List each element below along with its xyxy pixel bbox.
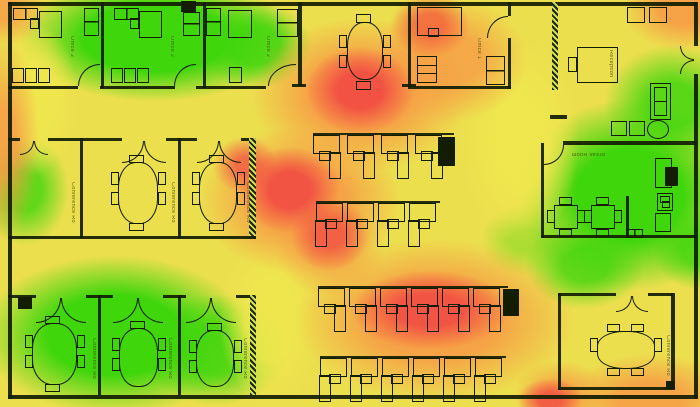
- chair: [383, 35, 391, 48]
- chair: [192, 172, 200, 185]
- wall: [508, 38, 511, 89]
- chair: [45, 316, 60, 324]
- workstation: [444, 358, 471, 377]
- shelf: [277, 9, 298, 37]
- chair: [590, 338, 598, 352]
- chair: [547, 210, 555, 223]
- wall: [648, 293, 673, 296]
- chair: [111, 172, 119, 185]
- chair: [596, 229, 609, 237]
- chair: [129, 155, 144, 163]
- chair: [111, 192, 119, 205]
- workstation: [378, 203, 405, 222]
- workstation: [347, 135, 374, 154]
- chair: [25, 68, 37, 83]
- workstation: [413, 358, 440, 377]
- printer: [503, 289, 519, 316]
- room-label-office: Office 2: [258, 36, 270, 68]
- room-label-break-room: Break Room: [567, 146, 605, 156]
- chair: [649, 7, 667, 23]
- wall: [408, 2, 411, 86]
- refrigerator: [665, 167, 678, 186]
- chair: [112, 338, 120, 351]
- wall: [508, 2, 511, 16]
- workstation: [382, 358, 409, 377]
- workstation: [313, 135, 340, 154]
- wall: [8, 236, 256, 239]
- conference-table: [196, 330, 234, 387]
- printer: [438, 137, 455, 166]
- table: [554, 205, 578, 229]
- chair: [45, 384, 60, 392]
- conference-table: [32, 323, 77, 385]
- chair: [137, 68, 149, 83]
- cabinet: [183, 12, 200, 36]
- room-label-conference: Conference Ro: [160, 338, 172, 382]
- wall: [563, 141, 697, 145]
- workstation: [475, 358, 502, 377]
- wall: [671, 293, 675, 389]
- chair: [189, 360, 197, 373]
- wall: [8, 86, 78, 89]
- chair: [229, 67, 242, 83]
- workstation: [381, 135, 408, 154]
- chair: [631, 324, 644, 332]
- access-point-marker: [181, 1, 196, 12]
- room-label-reception: Reception: [601, 50, 613, 86]
- wall: [48, 138, 122, 141]
- chair: [112, 358, 120, 371]
- workstation: [316, 203, 343, 222]
- chair: [607, 368, 620, 376]
- chair: [631, 368, 644, 376]
- room-label-office: Office 2: [162, 36, 174, 68]
- conference-table: [199, 162, 237, 224]
- room-label-conference: Conference Ro: [238, 182, 250, 224]
- chair: [559, 197, 572, 205]
- desk: [39, 11, 62, 38]
- access-point-marker: [666, 381, 675, 389]
- cabinet: [655, 213, 671, 232]
- chair: [38, 68, 50, 83]
- wall: [8, 2, 697, 6]
- chair: [629, 121, 645, 136]
- chair: [124, 68, 136, 83]
- wall: [250, 295, 256, 395]
- chair: [584, 210, 592, 223]
- room-label-office1: Office 1: [469, 38, 481, 70]
- wall: [178, 138, 181, 238]
- chair: [611, 121, 627, 136]
- wall-stub: [550, 115, 567, 119]
- room-label-conference: Conference Ro: [658, 335, 670, 379]
- cabinet: [206, 8, 221, 36]
- chair: [130, 321, 145, 329]
- wall: [163, 295, 186, 298]
- chair: [209, 155, 224, 163]
- desk: [417, 7, 462, 36]
- wall: [178, 295, 181, 395]
- wall: [80, 138, 83, 238]
- chair: [30, 18, 39, 29]
- wall: [408, 86, 511, 89]
- chair: [130, 18, 139, 29]
- conference-table: [119, 328, 158, 387]
- wall: [298, 2, 302, 86]
- wall: [249, 138, 256, 239]
- chair: [25, 335, 33, 348]
- workstation: [320, 358, 347, 377]
- desk: [228, 10, 252, 38]
- room-label-conference: Conference Ro: [84, 338, 96, 382]
- floor-box: [627, 229, 643, 238]
- chair: [111, 68, 123, 83]
- conference-table: [347, 22, 383, 80]
- wall: [558, 387, 675, 390]
- chair: [559, 229, 572, 237]
- wall: [8, 2, 12, 399]
- chair: [596, 197, 609, 205]
- chair: [25, 355, 33, 368]
- chair: [129, 223, 144, 231]
- chair: [189, 340, 197, 353]
- wall: [558, 293, 561, 390]
- round-table: [647, 120, 669, 139]
- room-label-conference: Conference Ro: [163, 182, 175, 224]
- chair: [339, 55, 347, 68]
- wall: [8, 138, 20, 141]
- chair: [607, 324, 620, 332]
- sink-counter: [657, 193, 673, 211]
- room-label-office: Office 2: [62, 36, 74, 68]
- wall: [101, 2, 104, 88]
- wall: [196, 86, 266, 89]
- workstation: [351, 358, 378, 377]
- wall: [694, 2, 698, 46]
- workstation: [347, 203, 374, 222]
- chair: [568, 57, 577, 72]
- chair: [207, 323, 222, 331]
- shelf: [417, 56, 437, 83]
- workstation: [442, 288, 469, 307]
- floorplan-canvas: Office 2 Office 2 Office 2 Office 1 Rece…: [0, 0, 700, 407]
- conference-table: [597, 331, 655, 369]
- wall: [558, 293, 616, 296]
- access-point-marker: [18, 297, 32, 309]
- chair: [383, 55, 391, 68]
- chair: [356, 14, 371, 23]
- cabinet: [486, 56, 505, 85]
- wall: [98, 295, 101, 395]
- chair: [614, 210, 622, 223]
- cabinet: [84, 8, 99, 36]
- conference-table: [118, 162, 158, 224]
- chair: [339, 35, 347, 48]
- chair: [627, 7, 645, 23]
- workstation: [409, 203, 436, 222]
- workstation: [380, 288, 407, 307]
- workstation: [318, 288, 345, 307]
- chair: [192, 192, 200, 205]
- room-label-conference: Conference Ro: [235, 338, 247, 382]
- chair: [428, 28, 439, 37]
- chair: [12, 68, 24, 83]
- workstation: [411, 288, 438, 307]
- table: [591, 205, 615, 229]
- chair: [209, 223, 224, 231]
- workstation: [349, 288, 376, 307]
- chair: [356, 81, 371, 90]
- couch: [650, 83, 671, 120]
- wall: [552, 2, 558, 90]
- wall: [166, 138, 197, 141]
- wall: [100, 86, 175, 89]
- desk: [139, 11, 162, 38]
- room-label-conference: Conference Ro: [63, 182, 75, 224]
- workstation: [473, 288, 500, 307]
